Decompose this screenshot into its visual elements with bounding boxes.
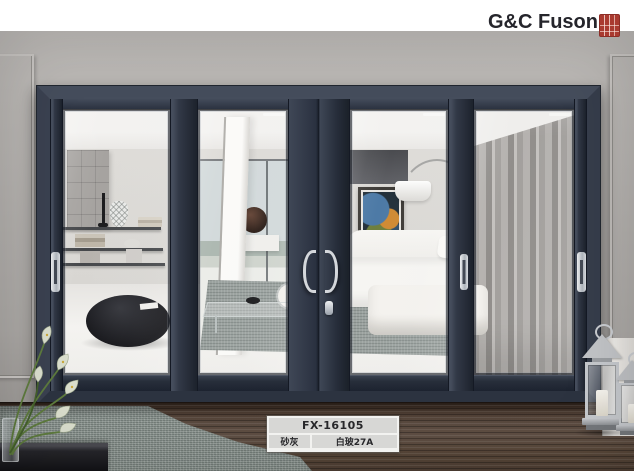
door-handle-left	[303, 250, 316, 293]
lantern-candle	[628, 404, 634, 423]
brand-logo-text: G&C Fuson	[488, 11, 598, 34]
candle-lantern-small	[613, 352, 634, 436]
label-glass-spec: 白玻27A	[312, 435, 397, 448]
calla-lily-plant	[0, 322, 95, 467]
label-model: FX-16105	[269, 418, 397, 433]
edge-pull-handle-right	[577, 252, 586, 292]
lantern-foot	[620, 431, 634, 435]
label-frame-color: 砂灰	[269, 435, 310, 448]
door-outer-frame	[37, 86, 600, 404]
edge-pull-handle-middle	[460, 254, 468, 290]
label-spec-row: 砂灰 白玻27A	[269, 435, 397, 447]
lantern-candle	[596, 390, 608, 416]
lantern-roof	[616, 360, 634, 380]
sliding-door-assembly	[37, 86, 600, 404]
edge-pull-handle-left	[51, 252, 60, 292]
door-product-photo: FX-16105 砂灰 白玻27A G&C Fuson	[0, 0, 634, 471]
brand-seal-icon	[599, 14, 620, 37]
door-lock-cylinder	[325, 301, 333, 315]
product-label: FX-16105 砂灰 白玻27A	[267, 416, 399, 452]
wall-molding-right	[610, 54, 634, 344]
